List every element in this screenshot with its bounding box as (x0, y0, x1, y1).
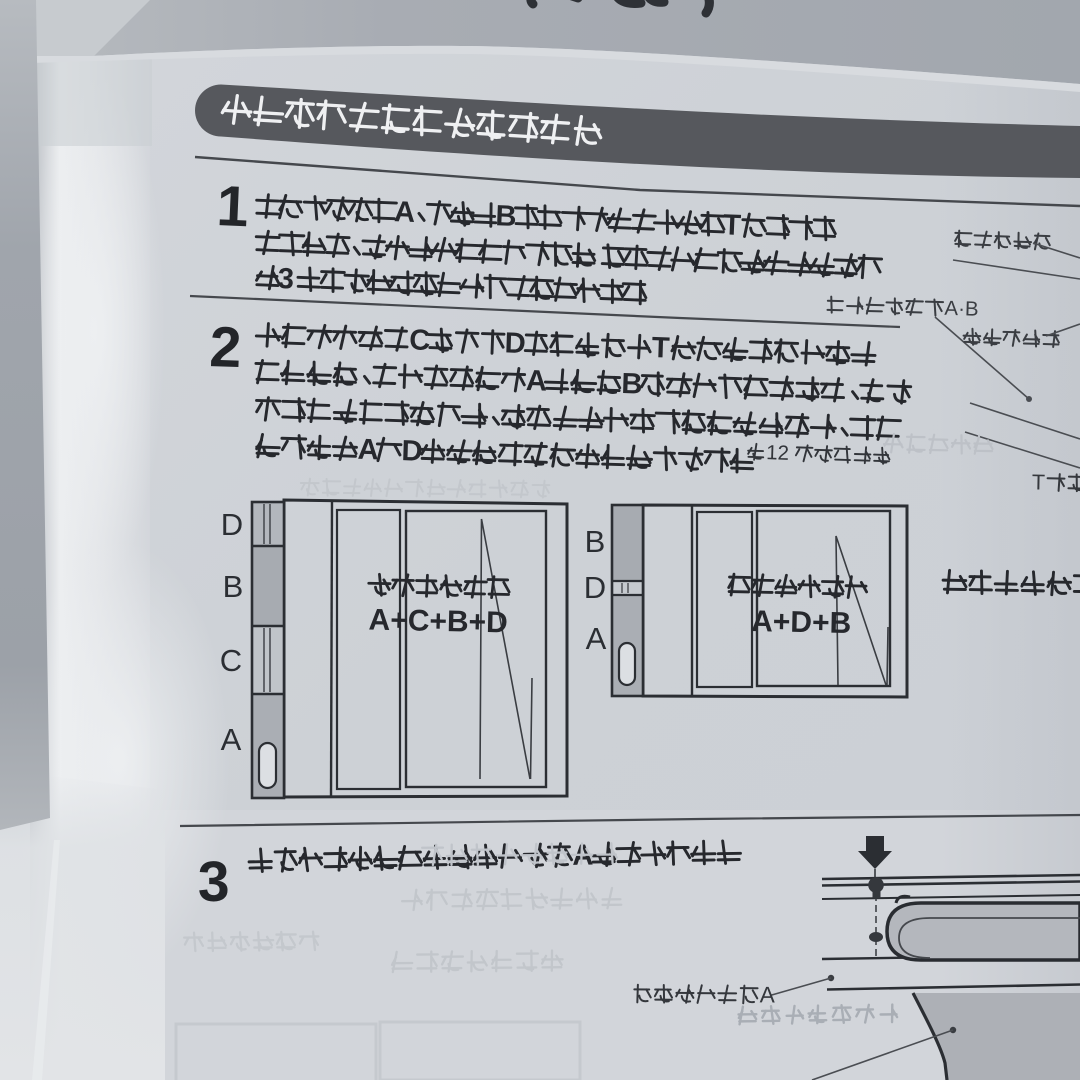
svg-text:D: D (504, 327, 526, 360)
svg-text:B: B (621, 368, 643, 401)
svg-text:A: A (357, 434, 379, 467)
svg-text:D: D (401, 435, 423, 468)
svg-text:1: 1 (215, 174, 249, 239)
svg-text:D: D (584, 570, 606, 605)
svg-text:T: T (722, 209, 741, 242)
svg-text:A: A (760, 981, 776, 1007)
svg-text:3: 3 (277, 263, 295, 296)
svg-text:2: 2 (209, 315, 243, 380)
svg-text:T: T (1032, 469, 1046, 494)
svg-text:A+D+B: A+D+B (751, 605, 852, 640)
svg-text:3: 3 (198, 850, 230, 914)
svg-text:A+C+B+D: A+C+B+D (368, 604, 508, 640)
svg-text:A·B: A·B (944, 297, 979, 321)
svg-text:D: D (221, 507, 243, 542)
svg-text:A: A (586, 621, 607, 656)
svg-text:T: T (651, 332, 670, 365)
svg-text:A: A (221, 722, 242, 757)
svg-text:C: C (220, 643, 242, 678)
svg-text:B: B (223, 569, 244, 604)
svg-text:A: A (525, 365, 547, 398)
svg-text:12: 12 (766, 441, 790, 465)
svg-text:A: A (393, 196, 415, 229)
svg-text:B: B (585, 524, 606, 559)
svg-text:C: C (409, 324, 431, 357)
svg-text:B: B (495, 200, 517, 233)
